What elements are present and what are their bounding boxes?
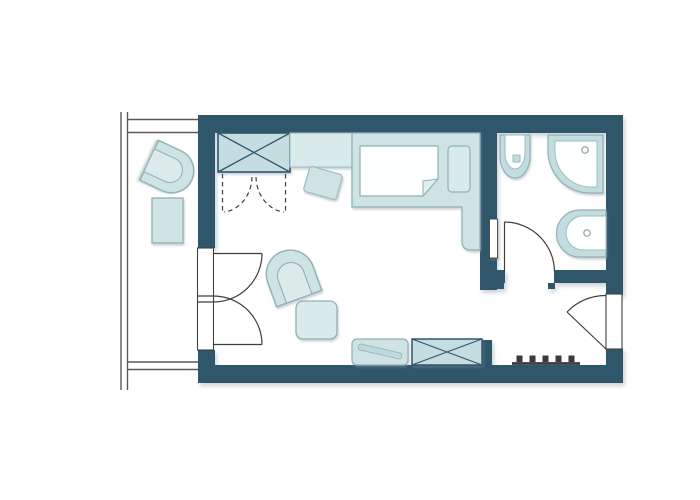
entrance-door-frame xyxy=(606,294,622,349)
wall-left-upper xyxy=(198,133,215,248)
armchair xyxy=(260,243,322,306)
bathroom-door-swing xyxy=(505,222,555,272)
entrance-door-swing xyxy=(567,295,606,312)
shower-drain-icon xyxy=(582,147,588,153)
pillow xyxy=(448,146,470,192)
wall-bottom xyxy=(198,365,623,383)
radiator-fin xyxy=(517,356,523,363)
balcony-door-swing-bottom xyxy=(214,296,263,345)
balcony-door-swing-top xyxy=(214,254,263,303)
toilet-bowl xyxy=(505,135,525,169)
wall-mirror xyxy=(490,219,498,258)
wall-top xyxy=(198,115,623,133)
radiator xyxy=(512,356,580,364)
bathroom-door-jamb-left xyxy=(497,283,504,289)
bedroom-furniture xyxy=(218,133,482,365)
entrance-door-leaf xyxy=(567,312,606,349)
desk-chair xyxy=(303,166,343,200)
wall-right-lower xyxy=(606,348,623,383)
bathroom-fixtures xyxy=(490,135,607,258)
balcony xyxy=(121,112,201,390)
wall-bathroom-left xyxy=(480,133,497,290)
radiator-fin xyxy=(569,356,575,363)
wardrobe-door-swing-right xyxy=(256,177,284,212)
wall-bathroom-south-right xyxy=(554,270,606,283)
wall-right-upper xyxy=(606,133,623,295)
floor-plan-canvas xyxy=(0,0,700,500)
floor-plan-drawing xyxy=(0,0,700,500)
side-table xyxy=(296,301,337,339)
wardrobe-door-swing-left xyxy=(224,177,252,212)
balcony-table xyxy=(152,198,183,243)
balcony-door-frame xyxy=(198,248,214,350)
desk xyxy=(290,133,352,167)
radiator-fin xyxy=(530,356,536,363)
washbasin-drain-icon xyxy=(584,230,590,236)
desk-chair-seat xyxy=(303,166,343,200)
balcony-armchair xyxy=(140,140,201,200)
radiator-fin xyxy=(543,356,549,363)
radiator-fin xyxy=(556,356,562,363)
wall-bathroom-south-left xyxy=(497,270,505,283)
bathroom-door-jamb-right xyxy=(548,283,555,289)
toilet-flush xyxy=(513,155,520,162)
